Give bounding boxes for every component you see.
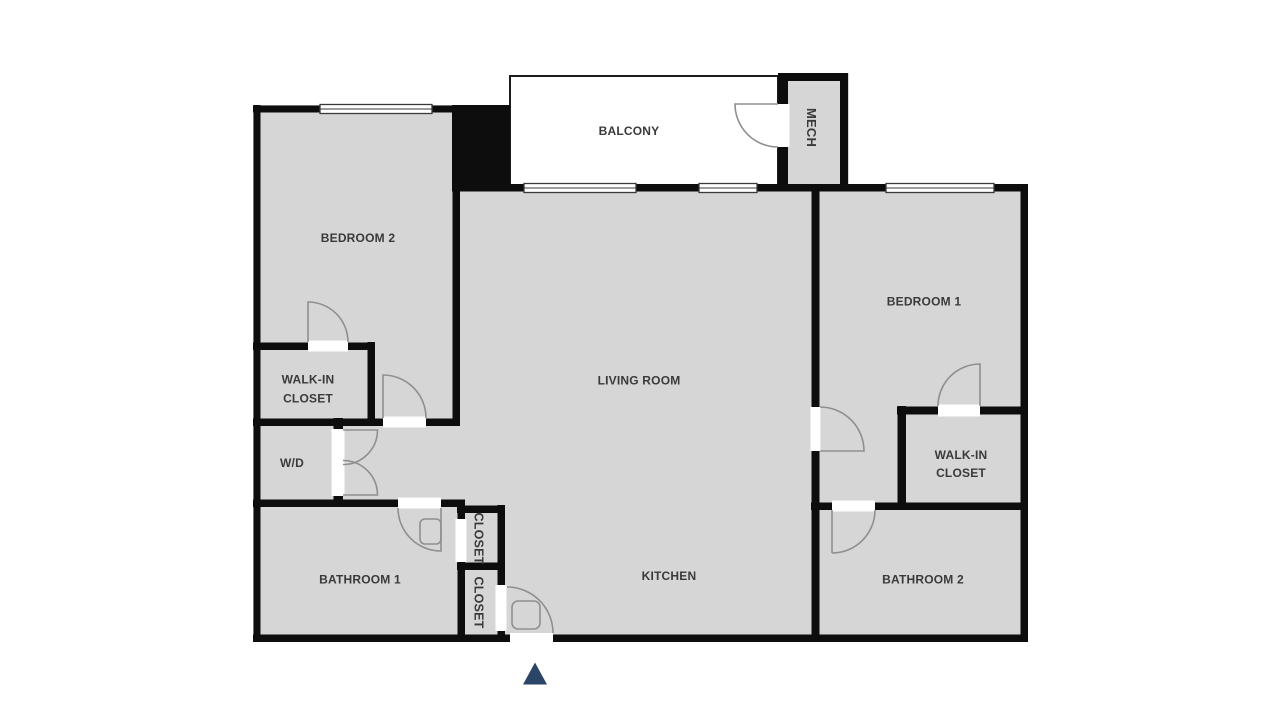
- svg-text:WALK-IN: WALK-IN: [282, 373, 335, 387]
- svg-text:CLOSET: CLOSET: [283, 392, 333, 406]
- svg-text:CLOSET: CLOSET: [472, 577, 486, 629]
- svg-text:KITCHEN: KITCHEN: [642, 569, 697, 583]
- svg-text:BALCONY: BALCONY: [599, 124, 660, 138]
- svg-text:BATHROOM 1: BATHROOM 1: [319, 573, 401, 587]
- svg-text:LIVING ROOM: LIVING ROOM: [598, 374, 681, 388]
- svg-text:MECH: MECH: [804, 108, 819, 147]
- svg-text:W/D: W/D: [280, 456, 304, 470]
- svg-text:WALK-IN: WALK-IN: [935, 448, 988, 462]
- svg-text:BEDROOM 2: BEDROOM 2: [321, 231, 396, 245]
- svg-text:BATHROOM 2: BATHROOM 2: [882, 573, 964, 587]
- svg-text:CLOSET: CLOSET: [936, 466, 986, 480]
- svg-text:BEDROOM 1: BEDROOM 1: [887, 295, 962, 309]
- svg-text:CLOSET: CLOSET: [472, 513, 486, 565]
